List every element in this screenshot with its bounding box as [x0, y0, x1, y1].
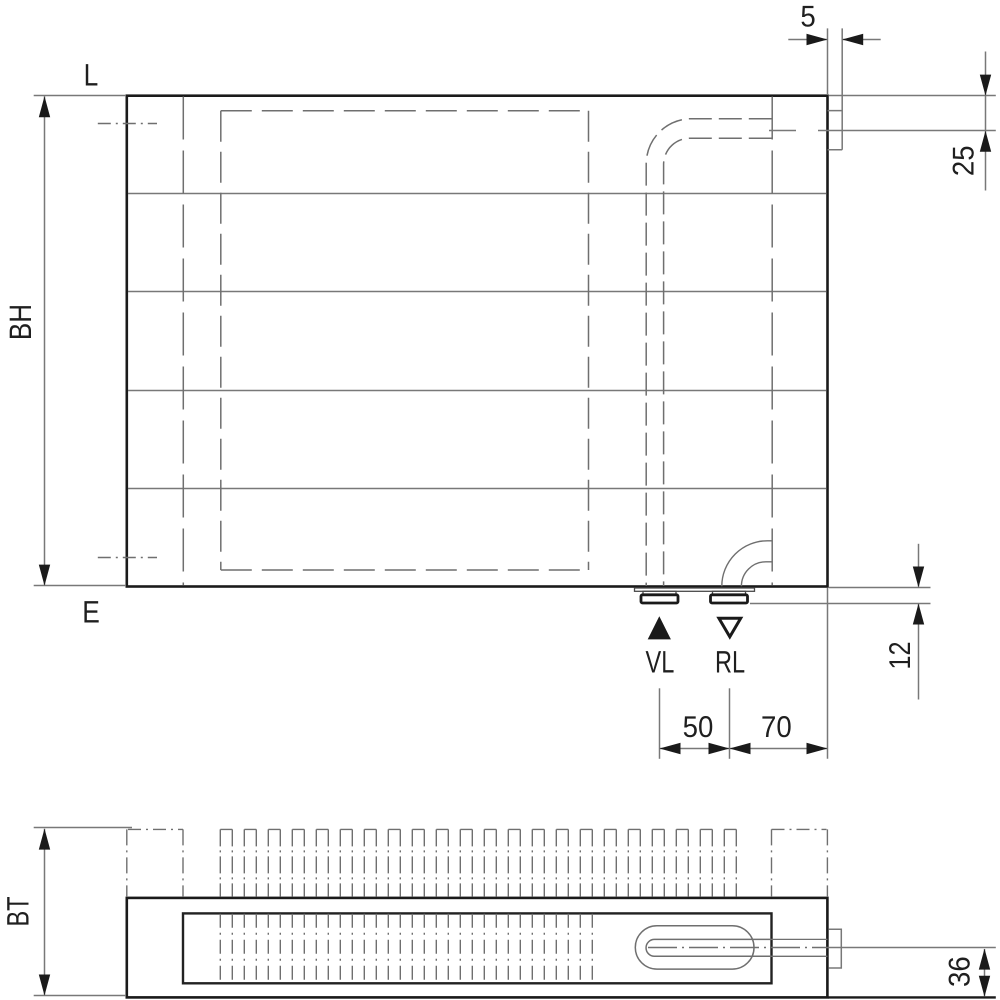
- svg-text:36: 36: [944, 956, 977, 987]
- svg-text:70: 70: [761, 711, 792, 744]
- svg-text:5: 5: [800, 1, 815, 34]
- svg-text:RL: RL: [715, 644, 745, 679]
- svg-text:BT: BT: [0, 896, 35, 926]
- svg-text:12: 12: [884, 641, 917, 669]
- svg-text:VL: VL: [645, 644, 674, 679]
- svg-text:L: L: [84, 58, 99, 93]
- svg-text:E: E: [82, 594, 100, 629]
- svg-text:25: 25: [948, 145, 981, 176]
- svg-text:50: 50: [683, 711, 714, 744]
- svg-text:BH: BH: [3, 304, 38, 340]
